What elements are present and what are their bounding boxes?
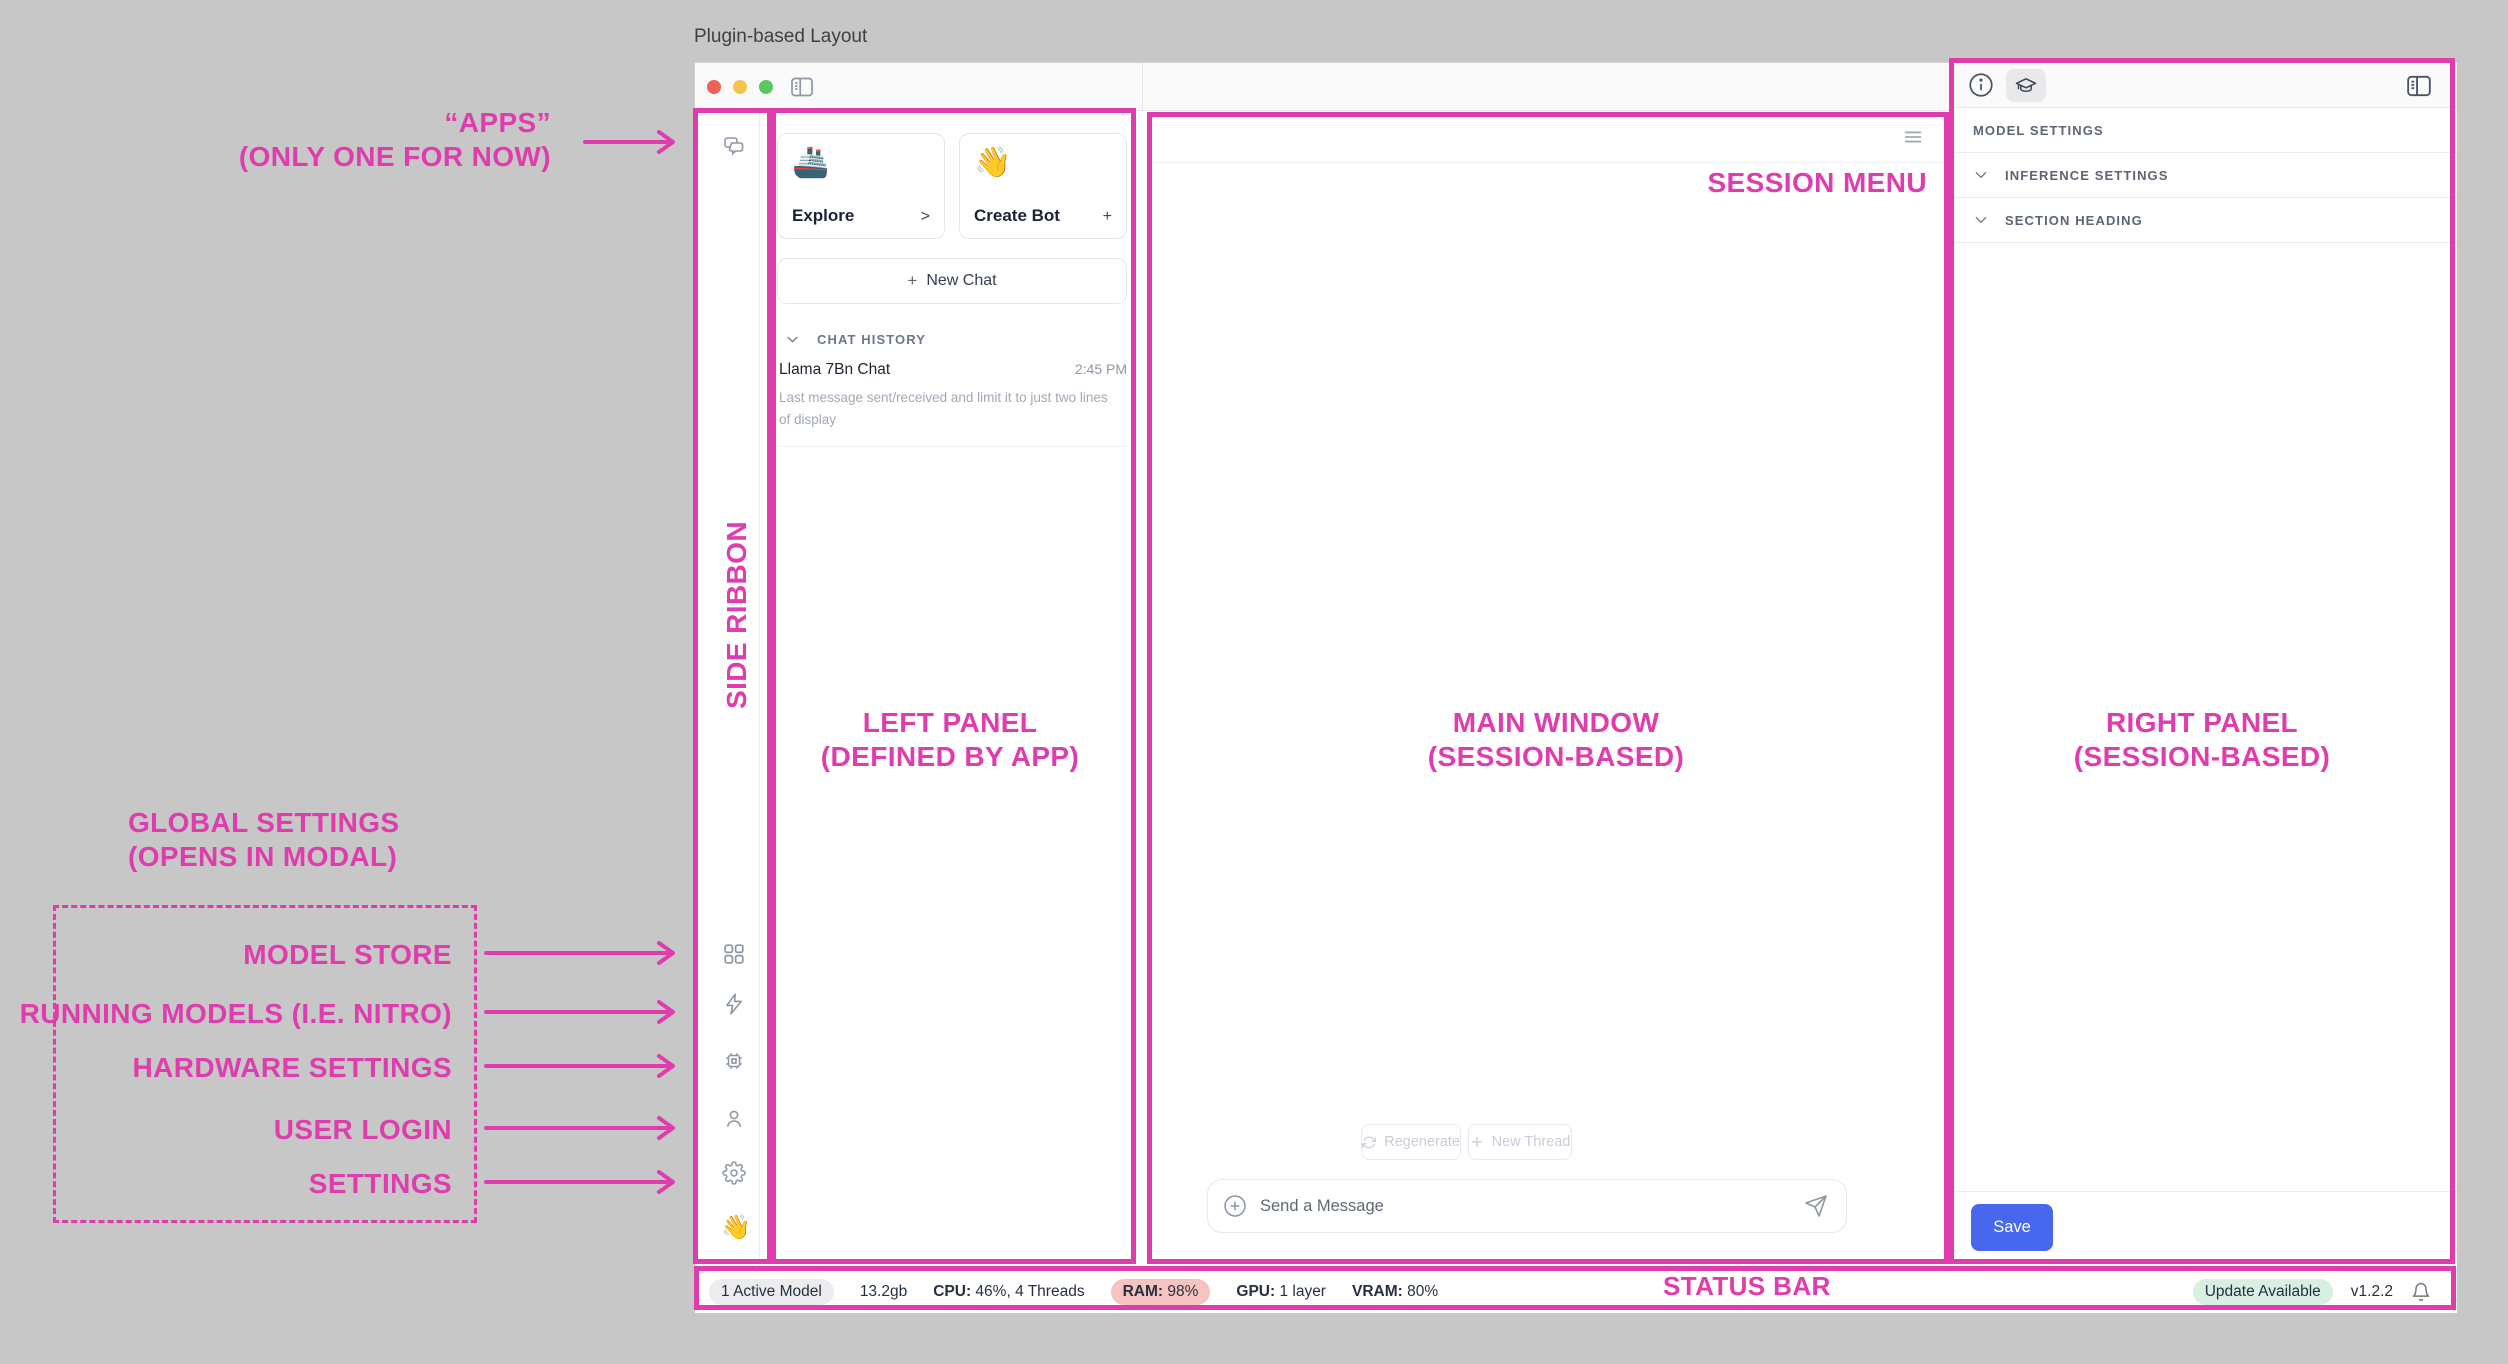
model-size-value: 13.2gb	[860, 1283, 907, 1301]
inference-settings-accordion[interactable]: INFERENCE SETTINGS	[1951, 153, 2457, 198]
vram-status: VRAM: 80%	[1352, 1283, 1438, 1301]
settings-annotation-arrow	[484, 1167, 679, 1197]
cpu-status: CPU: 46%, 4 Threads	[933, 1283, 1084, 1301]
section-heading-accordion[interactable]: SECTION HEADING	[1951, 198, 2457, 243]
create-bot-card-label: Create Bot	[974, 206, 1060, 226]
main-window: Regenerate New Thread	[1148, 111, 1950, 1273]
app-window: 👋 🚢 Explore > 👋 Create Bot + + New Chat …	[694, 62, 2456, 1312]
titlebar-divider	[1142, 63, 1143, 111]
hardware-settings-annotation-arrow	[484, 1051, 679, 1081]
new-chat-label: New Chat	[926, 272, 996, 290]
model-settings-label: MODEL SETTINGS	[1973, 123, 2104, 138]
chat-history-label: CHAT HISTORY	[817, 332, 926, 347]
new-thread-button[interactable]: New Thread	[1468, 1124, 1572, 1160]
global-settings-annotation-box	[53, 905, 477, 1223]
hardware-settings-icon[interactable]	[722, 1049, 746, 1073]
canvas-title: Plugin-based Layout	[694, 26, 867, 48]
send-icon[interactable]	[1804, 1194, 1828, 1218]
new-thread-label: New Thread	[1492, 1134, 1571, 1150]
new-chat-button[interactable]: + New Chat	[777, 258, 1127, 304]
left-sidebar-toggle-icon[interactable]	[790, 76, 814, 98]
plus-icon: +	[907, 271, 917, 291]
message-composer	[1207, 1179, 1847, 1233]
section-heading-label: SECTION HEADING	[2005, 213, 2143, 228]
message-input[interactable]	[1260, 1180, 1760, 1232]
regenerate-button[interactable]: Regenerate	[1361, 1124, 1461, 1160]
chevron-down-icon	[1973, 167, 1989, 183]
session-menu-icon[interactable]	[1902, 126, 1924, 148]
chat-item-time: 2:45 PM	[1075, 361, 1127, 377]
update-available-badge[interactable]: Update Available	[2193, 1279, 2333, 1305]
refresh-icon	[1362, 1135, 1376, 1150]
attach-plus-icon[interactable]	[1222, 1193, 1248, 1219]
minimize-window-button[interactable]	[733, 80, 747, 94]
settings-gear-icon[interactable]	[722, 1161, 746, 1185]
bell-icon[interactable]	[2411, 1282, 2431, 1302]
model-store-icon[interactable]	[722, 942, 746, 966]
graduation-cap-icon	[2014, 74, 2038, 98]
apps-annotation-arrow	[583, 127, 679, 157]
global-settings-annotation: GLOBAL SETTINGS (OPENS IN MODAL)	[128, 806, 400, 874]
create-bot-card[interactable]: 👋 Create Bot +	[959, 133, 1127, 239]
info-icon[interactable]	[1967, 71, 1995, 99]
close-window-button[interactable]	[707, 80, 721, 94]
model-settings-tab[interactable]	[2006, 69, 2046, 102]
plus-icon	[1470, 1135, 1484, 1149]
right-panel-header	[1951, 63, 2457, 108]
wave-emoji-icon: 👋	[974, 146, 1011, 180]
chat-item-title: Llama 7Bn Chat	[779, 361, 890, 379]
explore-card-chevron: >	[921, 208, 930, 226]
model-settings-section-header: MODEL SETTINGS	[1951, 108, 2457, 153]
explore-card[interactable]: 🚢 Explore >	[777, 133, 945, 239]
user-login-icon[interactable]	[722, 1107, 746, 1131]
right-sidebar-toggle-icon[interactable]	[2406, 74, 2432, 98]
status-bar: 1 Active Model 13.2gb CPU: 46%, 4 Thread…	[695, 1269, 2457, 1313]
create-bot-card-plus: +	[1103, 208, 1112, 226]
explore-card-label: Explore	[792, 206, 854, 226]
side-ribbon: 👋	[708, 111, 760, 1273]
main-window-header	[1148, 111, 1950, 163]
right-panel-footer-divider	[1951, 1191, 2457, 1192]
chat-app-icon[interactable]	[722, 134, 746, 158]
active-model-badge: 1 Active Model	[709, 1279, 834, 1305]
ram-status-badge: RAM: 98%	[1111, 1279, 1211, 1305]
regenerate-label: Regenerate	[1384, 1134, 1460, 1150]
chat-history-header[interactable]: CHAT HISTORY	[777, 332, 1127, 347]
chevron-down-icon	[785, 332, 800, 347]
wave-emoji-icon[interactable]: 👋	[721, 1215, 751, 1241]
user-login-annotation-arrow	[484, 1113, 679, 1143]
inference-settings-label: INFERENCE SETTINGS	[2005, 168, 2169, 183]
ship-emoji-icon: 🚢	[792, 146, 829, 180]
zoom-window-button[interactable]	[759, 80, 773, 94]
chat-item-preview: Last message sent/received and limit it …	[779, 387, 1109, 430]
running-models-annotation-arrow	[484, 997, 679, 1027]
apps-annotation: “APPS” (ONLY ONE FOR NOW)	[239, 106, 551, 174]
version-label: v1.2.2	[2351, 1283, 2393, 1301]
right-panel: MODEL SETTINGS INFERENCE SETTINGS SECTIO…	[1951, 63, 2457, 1273]
gpu-status: GPU: 1 layer	[1236, 1283, 1326, 1301]
save-button[interactable]: Save	[1971, 1204, 2053, 1251]
model-store-annotation-arrow	[484, 938, 679, 968]
left-panel: 🚢 Explore > 👋 Create Bot + + New Chat CH…	[771, 111, 1133, 1273]
chat-history-item[interactable]: Llama 7Bn Chat 2:45 PM Last message sent…	[777, 361, 1127, 447]
chevron-down-icon	[1973, 212, 1989, 228]
running-models-icon[interactable]	[722, 992, 746, 1016]
